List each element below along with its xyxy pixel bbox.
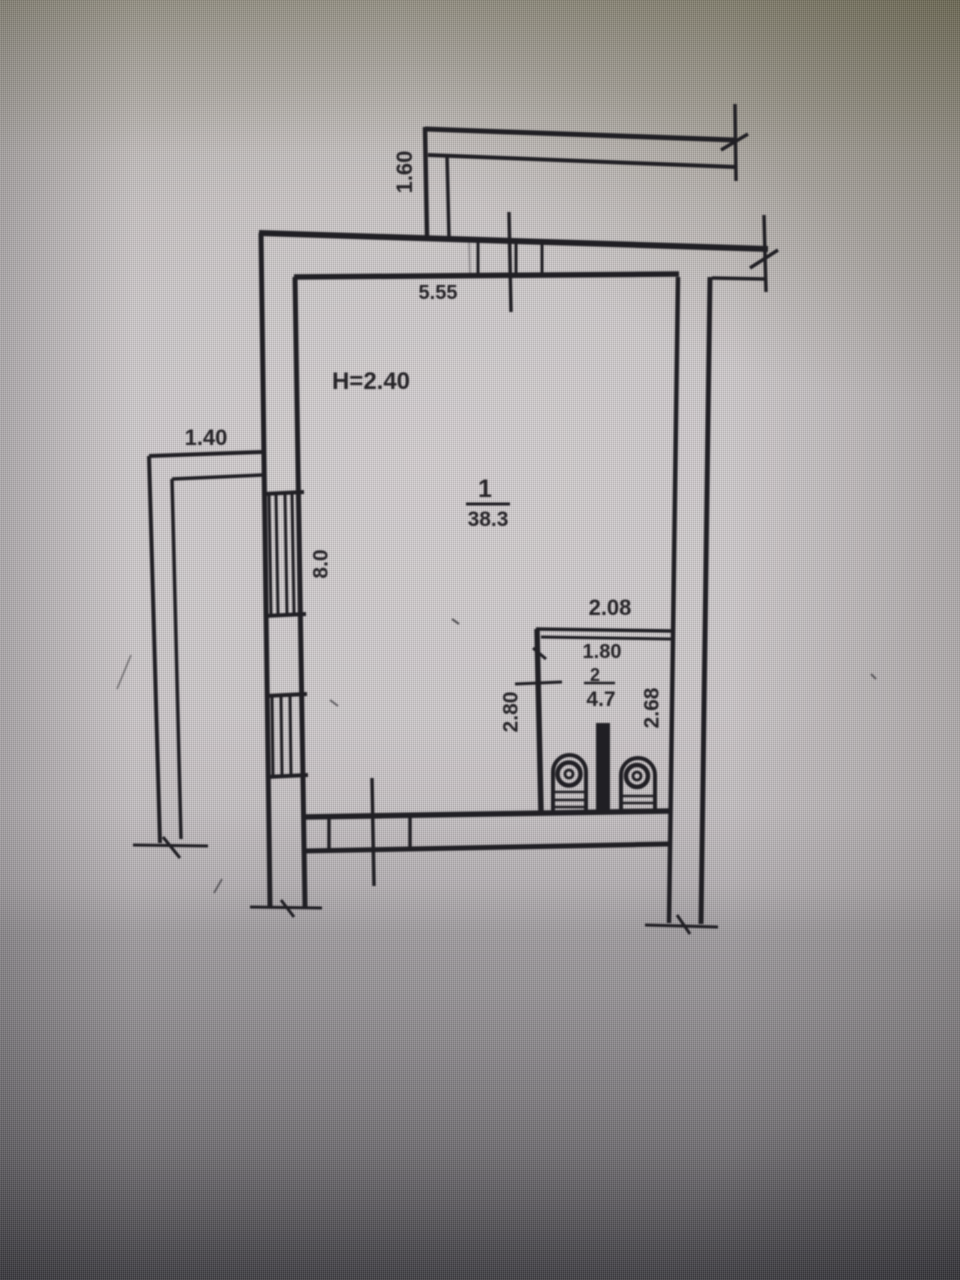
svg-text:2.08: 2.08: [589, 595, 632, 620]
svg-text:1.80: 1.80: [583, 641, 622, 663]
svg-text:2.68: 2.68: [641, 687, 664, 728]
svg-text:2: 2: [590, 665, 600, 685]
svg-text:2.80: 2.80: [500, 692, 523, 733]
svg-text:H=2.40: H=2.40: [332, 368, 410, 395]
svg-text:1.60: 1.60: [392, 151, 417, 194]
svg-text:38.3: 38.3: [468, 508, 509, 531]
svg-text:1.40: 1.40: [185, 425, 228, 450]
svg-text:8.0: 8.0: [310, 549, 333, 578]
svg-text:4.7: 4.7: [586, 688, 615, 711]
svg-text:5.55: 5.55: [419, 282, 458, 304]
svg-text:1: 1: [478, 475, 492, 503]
